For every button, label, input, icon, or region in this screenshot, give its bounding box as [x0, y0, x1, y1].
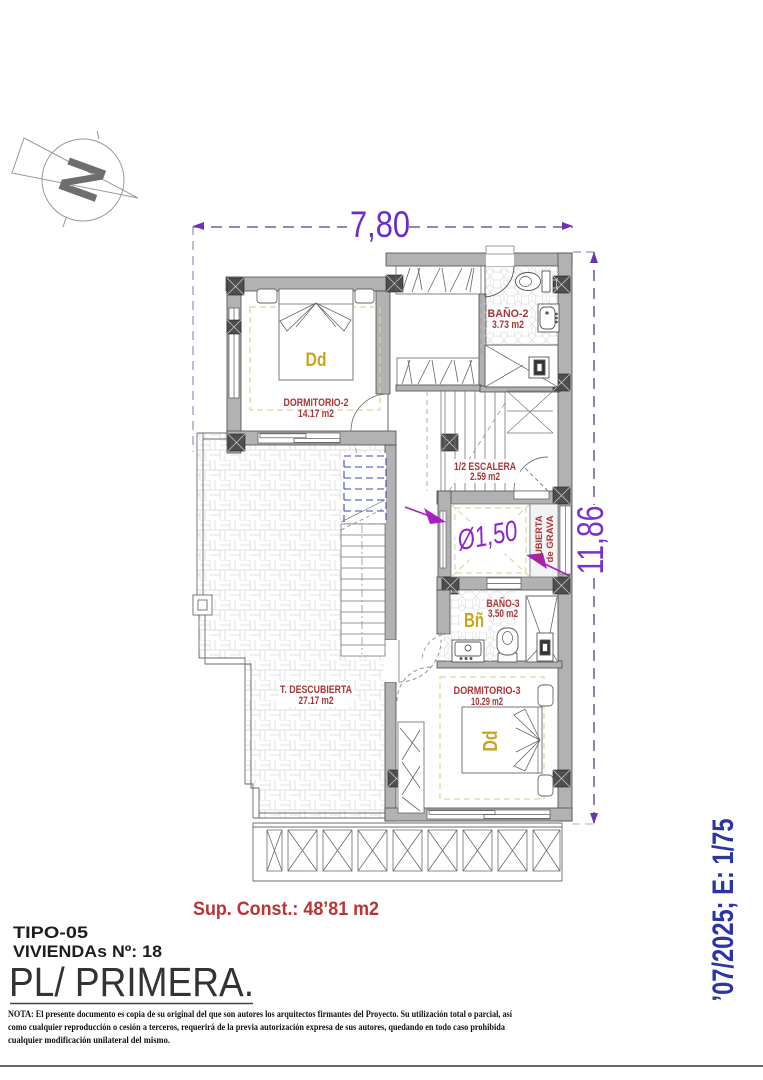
- svg-text:’07/2025; E: 1/75: ’07/2025; E: 1/75: [707, 819, 740, 1002]
- svg-text:como cualquier reproducción o: como cualquier reproducción o cesión a t…: [8, 1023, 505, 1033]
- svg-text:Bñ: Bñ: [464, 610, 484, 632]
- svg-text:14.17 m2: 14.17 m2: [298, 408, 334, 420]
- svg-text:27.17 m2: 27.17 m2: [299, 695, 334, 707]
- svg-text:7,80: 7,80: [350, 204, 410, 245]
- svg-text:Dd: Dd: [306, 350, 327, 371]
- svg-text:3.73 m2: 3.73 m2: [492, 319, 524, 331]
- svg-text:CUBIERTA: CUBIERTA: [534, 515, 544, 562]
- svg-text:Sup. Const.: 48’81 m2: Sup. Const.: 48’81 m2: [193, 899, 379, 920]
- svg-text:3.50 m2: 3.50 m2: [488, 608, 518, 620]
- svg-text:cualquier modificación unilate: cualquier modificación unilateral del mi…: [8, 1036, 170, 1046]
- svg-text:de GRAVA: de GRAVA: [545, 515, 555, 563]
- svg-text:NOTA: El presente documento es: NOTA: El presente documento es copia de …: [8, 1010, 512, 1020]
- svg-text:PL/ PRIMERA.: PL/ PRIMERA.: [9, 959, 254, 1005]
- svg-text:TIPO-05: TIPO-05: [13, 923, 88, 942]
- svg-text:11,86: 11,86: [570, 506, 611, 575]
- svg-text:10.29 m2: 10.29 m2: [471, 696, 503, 708]
- svg-text:2.59 m2: 2.59 m2: [470, 471, 500, 483]
- svg-text:Dd: Dd: [480, 731, 502, 752]
